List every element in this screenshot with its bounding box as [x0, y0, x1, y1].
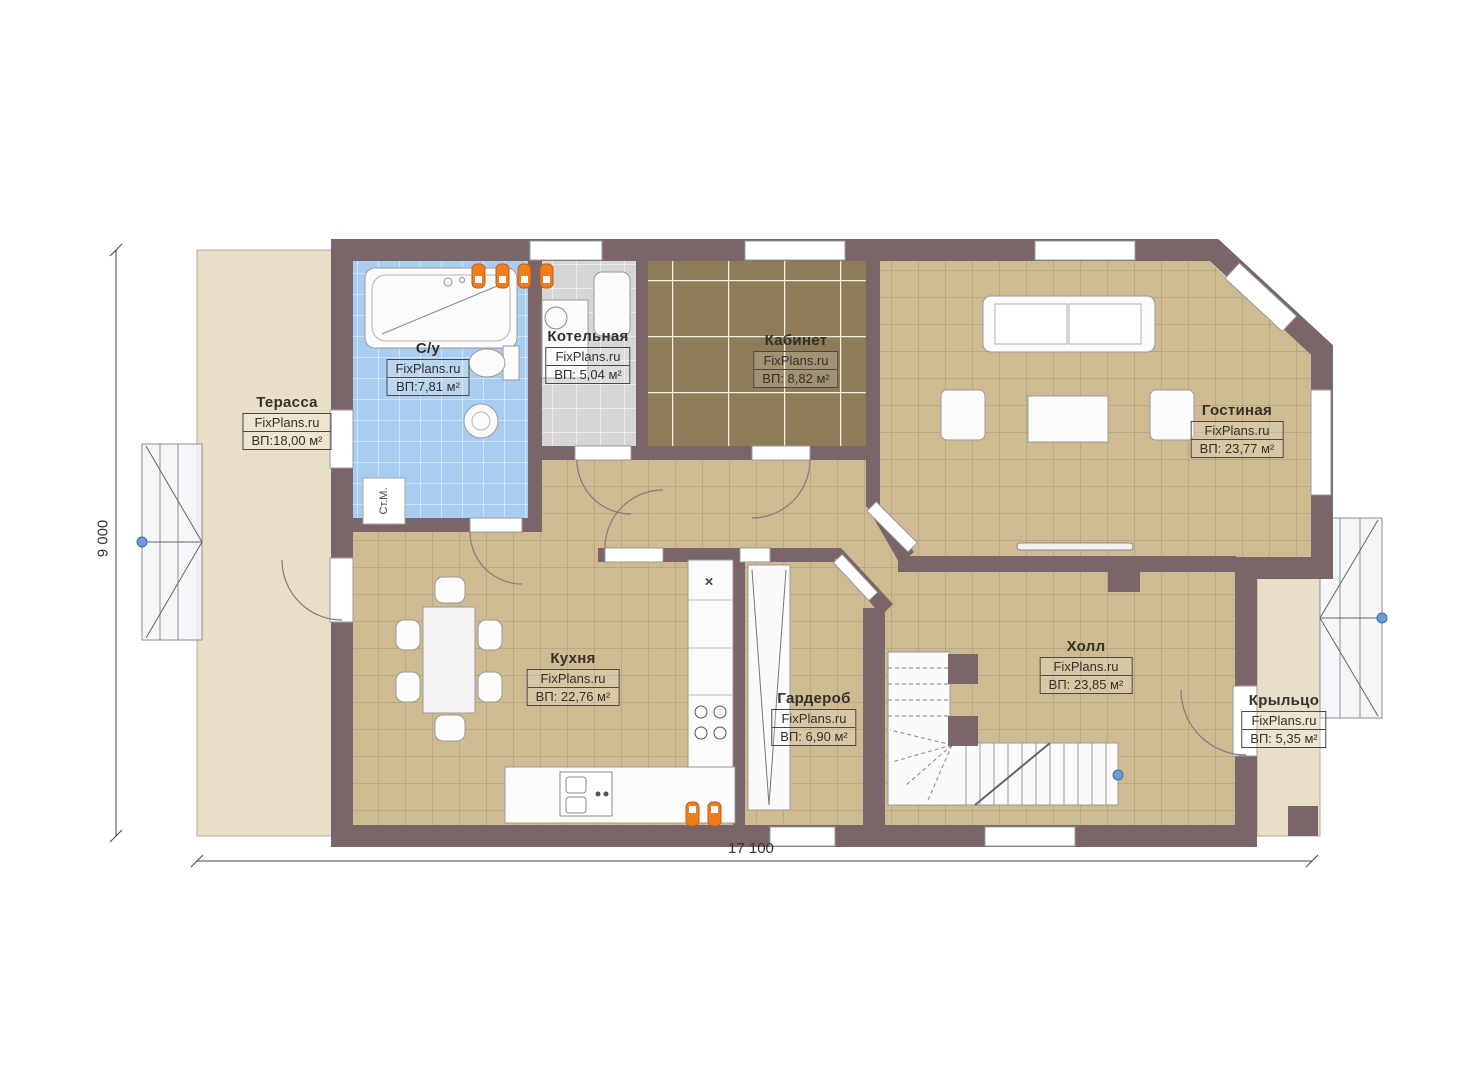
- watermark: FixPlans.ru: [243, 414, 330, 432]
- room-label-office: Кабинет FixPlans.ru ВП: 8,82 м²: [753, 332, 838, 388]
- room-area: ВП:7,81 м²: [387, 378, 468, 395]
- hall-column: [1108, 562, 1140, 592]
- room-area: ВП: 23,85 м²: [1041, 676, 1132, 693]
- kitchen-sink-icon: [560, 772, 612, 816]
- room-name: Кабинет: [753, 332, 838, 349]
- room-info-box: FixPlans.ru ВП: 5,04 м²: [545, 347, 630, 384]
- room-label-bathroom: С/у FixPlans.ru ВП:7,81 м²: [386, 340, 469, 396]
- watermark: FixPlans.ru: [1242, 712, 1325, 730]
- room-info-box: FixPlans.ru ВП: 23,77 м²: [1191, 421, 1284, 458]
- washing-machine-label: Ст.М.: [378, 487, 390, 514]
- room-area: ВП: 5,35 м²: [1242, 730, 1325, 747]
- bathtub-icon: [365, 268, 517, 348]
- coffee-table-icon: [1028, 396, 1108, 442]
- terrace-floor: [197, 250, 333, 836]
- room-name: С/у: [386, 340, 469, 357]
- porch-post: [1288, 806, 1318, 836]
- room-name: Котельная: [545, 328, 630, 345]
- room-info-box: FixPlans.ru ВП: 8,82 м²: [753, 351, 838, 388]
- room-label-porch: Крыльцо FixPlans.ru ВП: 5,35 м²: [1241, 692, 1326, 748]
- room-name: Гостиная: [1191, 402, 1284, 419]
- floor-plan-canvas: [0, 0, 1474, 1080]
- room-label-hall: Холл FixPlans.ru ВП: 23,85 м²: [1040, 638, 1133, 694]
- stair-post: [948, 716, 978, 746]
- dimension-width-label: 17 100: [728, 840, 774, 857]
- room-name: Кухня: [527, 650, 620, 667]
- room-label-terrace: Терасса FixPlans.ru ВП:18,00 м²: [242, 394, 331, 450]
- room-info-box: FixPlans.ru ВП: 5,35 м²: [1241, 711, 1326, 748]
- room-area: ВП: 5,04 м²: [546, 366, 629, 383]
- room-info-box: FixPlans.ru ВП:18,00 м²: [242, 413, 331, 450]
- room-label-wardrobe: Гардероб FixPlans.ru ВП: 6,90 м²: [771, 690, 856, 746]
- watermark: FixPlans.ru: [754, 352, 837, 370]
- wardrobe-rail-icon: [748, 565, 790, 810]
- watermark: FixPlans.ru: [387, 360, 468, 378]
- room-name: Холл: [1040, 638, 1133, 655]
- room-name: Терасса: [242, 394, 331, 411]
- watermark: FixPlans.ru: [528, 670, 619, 688]
- room-area: ВП: 22,76 м²: [528, 688, 619, 705]
- room-label-boiler: Котельная FixPlans.ru ВП: 5,04 м²: [545, 328, 630, 384]
- room-name: Гардероб: [771, 690, 856, 707]
- tv-console-icon: [1017, 543, 1133, 550]
- hob-symbol: ×: [705, 574, 714, 591]
- grip-handle[interactable]: [1113, 770, 1123, 780]
- grip-handle[interactable]: [137, 537, 147, 547]
- floor-plan-page: Терасса FixPlans.ru ВП:18,00 м² С/у FixP…: [0, 0, 1474, 1080]
- toilet-icon: [469, 346, 519, 380]
- watermark: FixPlans.ru: [1192, 422, 1283, 440]
- room-info-box: FixPlans.ru ВП: 23,85 м²: [1040, 657, 1133, 694]
- room-name: Крыльцо: [1241, 692, 1326, 709]
- room-info-box: FixPlans.ru ВП:7,81 м²: [386, 359, 469, 396]
- watermark: FixPlans.ru: [546, 348, 629, 366]
- room-area: ВП: 6,90 м²: [772, 728, 855, 745]
- stair-post: [948, 654, 978, 684]
- room-area: ВП: 23,77 м²: [1192, 440, 1283, 457]
- dimension-height-label: 9 000: [94, 520, 111, 558]
- sofa-icon: [983, 296, 1155, 352]
- watermark: FixPlans.ru: [772, 710, 855, 728]
- watermark: FixPlans.ru: [1041, 658, 1132, 676]
- left-canopy-roof: [142, 444, 202, 640]
- room-label-living: Гостиная FixPlans.ru ВП: 23,77 м²: [1191, 402, 1284, 458]
- grip-handle[interactable]: [1377, 613, 1387, 623]
- sink-icon: [464, 404, 498, 438]
- room-label-kitchen: Кухня FixPlans.ru ВП: 22,76 м²: [527, 650, 620, 706]
- room-area: ВП:18,00 м²: [243, 432, 330, 449]
- room-info-box: FixPlans.ru ВП: 22,76 м²: [527, 669, 620, 706]
- room-info-box: FixPlans.ru ВП: 6,90 м²: [771, 709, 856, 746]
- room-area: ВП: 8,82 м²: [754, 370, 837, 387]
